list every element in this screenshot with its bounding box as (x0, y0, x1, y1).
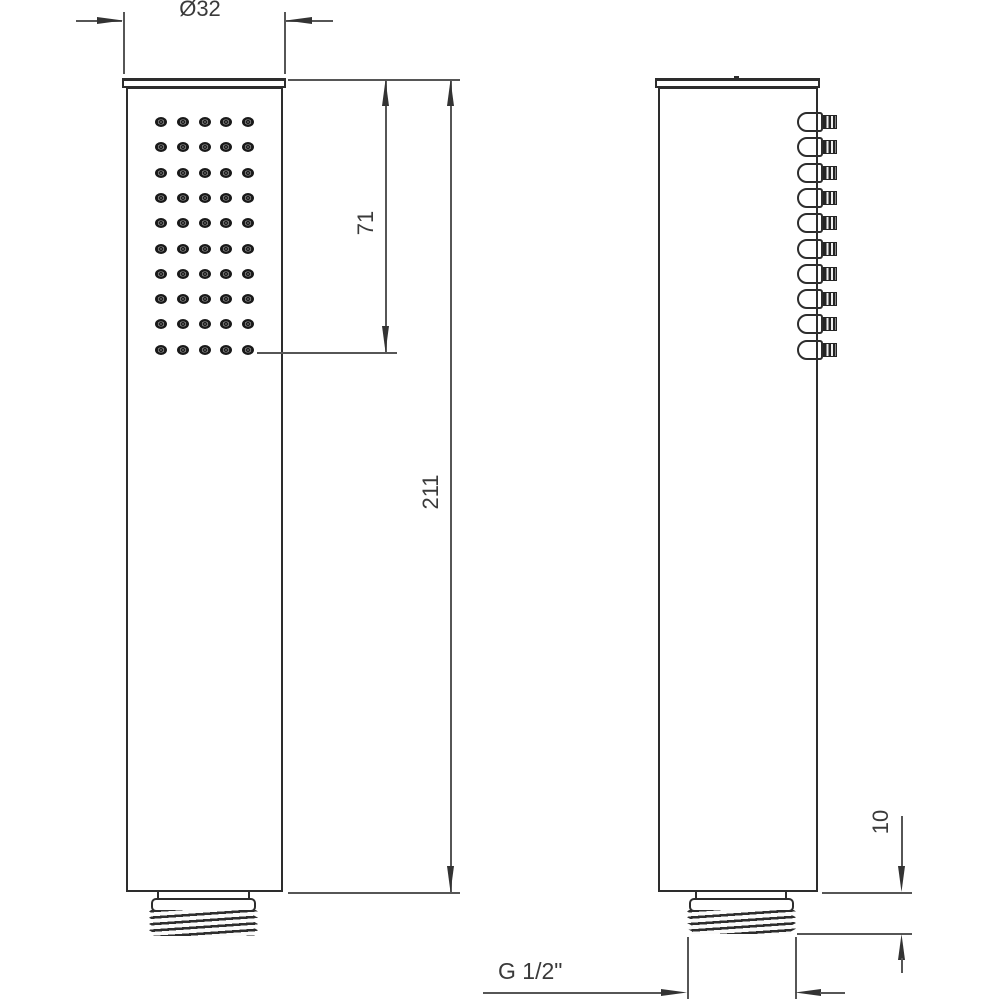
dim-thread-length-label: 10 (859, 800, 903, 844)
dim-thread-spec-line-left (483, 992, 663, 994)
side-nozzle-tip (823, 292, 837, 306)
side-nozzle-capsule (797, 289, 823, 309)
side-nozzle-capsule (797, 112, 823, 132)
nozzle-dot (177, 345, 189, 355)
dim-head-width-arrow-left (97, 17, 123, 24)
side-nozzle-capsule (797, 137, 823, 157)
dim-thread-length-line-lower (901, 958, 903, 973)
side-nozzle-tip (823, 317, 837, 331)
dim-thread-spec-arrow-right (795, 989, 821, 996)
front-connector-collar (151, 898, 256, 912)
dim-thread-spec-line-right (820, 992, 845, 994)
nozzle-dot (242, 244, 254, 254)
nozzle-dot (155, 193, 167, 203)
dim-thread-length-ext-bottom (797, 933, 912, 935)
side-nozzle-capsule (797, 239, 823, 259)
nozzle-dot (199, 168, 211, 178)
nozzle-dot (199, 319, 211, 329)
side-connector-collar (689, 898, 794, 912)
dim-spray-face-arrow-top (382, 80, 389, 106)
dim-total-length-arrow-bottom (447, 866, 454, 892)
dim-thread-length-line-upper (901, 816, 903, 868)
side-body (658, 87, 818, 892)
nozzle-dot (177, 244, 189, 254)
dim-thread-spec-arrow-left (661, 989, 687, 996)
side-nozzle-capsule (797, 163, 823, 183)
dim-thread-spec-label: G 1/2" (498, 958, 608, 984)
side-nozzle-tip (823, 140, 837, 154)
drawing-canvas: Ø32 71 211 10 G 1/2" (0, 0, 1000, 1000)
nozzle-dot (155, 269, 167, 279)
side-nozzle-capsule (797, 213, 823, 233)
dim-head-width-arrow-right (286, 17, 312, 24)
dim-head-width-label: Ø32 (150, 0, 250, 21)
dim-thread-spec-ext-left (687, 937, 689, 999)
side-nozzle-capsule (797, 264, 823, 284)
nozzle-dot (199, 142, 211, 152)
nozzle-dot (155, 244, 167, 254)
dim-head-width-ext-left (123, 12, 125, 74)
dim-thread-spec-ext-right (795, 937, 797, 999)
nozzle-dot (177, 168, 189, 178)
side-nozzle-capsule (797, 340, 823, 360)
side-nozzle-tip (823, 242, 837, 256)
nozzle-dot (155, 168, 167, 178)
nozzle-dot (177, 193, 189, 203)
side-nozzle-capsule (797, 314, 823, 334)
nozzle-dot (177, 218, 189, 228)
nozzle-dot (220, 244, 232, 254)
side-thread (687, 910, 796, 934)
nozzle-dot (177, 269, 189, 279)
nozzle-dot (220, 168, 232, 178)
nozzle-dot (242, 168, 254, 178)
nozzle-dot (220, 345, 232, 355)
nozzle-dot (199, 117, 211, 127)
nozzle-dot (155, 345, 167, 355)
side-nozzle-tip (823, 191, 837, 205)
dim-spray-face-label: 71 (344, 201, 388, 245)
nozzle-dot (242, 117, 254, 127)
front-thread (149, 910, 258, 936)
nozzle-dot (155, 117, 167, 127)
nozzle-dot (177, 294, 189, 304)
nozzle-dot (199, 345, 211, 355)
dim-total-length-ext-bottom (288, 892, 460, 894)
side-cap-notch (734, 76, 739, 79)
nozzle-dot (199, 218, 211, 228)
nozzle-dot (242, 269, 254, 279)
nozzle-dot (220, 269, 232, 279)
dim-spray-face-arrow-bottom (382, 326, 389, 352)
side-nozzle-tip (823, 166, 837, 180)
dim-thread-length-arrow-bottom (898, 934, 905, 960)
nozzle-dot (199, 193, 211, 203)
front-body (126, 87, 283, 892)
side-nozzle-capsule (797, 188, 823, 208)
nozzle-dot (242, 345, 254, 355)
side-nozzle-tip (823, 267, 837, 281)
nozzle-dot (199, 294, 211, 304)
side-nozzle-tip (823, 216, 837, 230)
dim-top-extension-line (288, 79, 460, 81)
dim-thread-length-arrow-top (898, 866, 905, 892)
nozzle-dot (242, 193, 254, 203)
dim-spray-face-ext-bottom (257, 352, 397, 354)
side-nozzle-tip (823, 115, 837, 129)
nozzle-dot (177, 117, 189, 127)
dim-total-length-label: 211 (409, 470, 453, 514)
dim-thread-length-ext-top (822, 892, 912, 894)
side-nozzle-tip (823, 343, 837, 357)
dim-total-length-arrow-top (447, 80, 454, 106)
nozzle-dot (199, 269, 211, 279)
nozzle-dot (199, 244, 211, 254)
